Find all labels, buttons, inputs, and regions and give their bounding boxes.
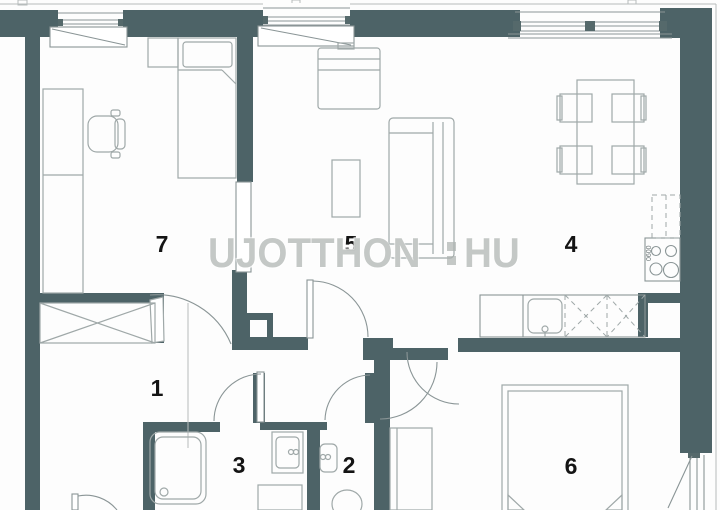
shower (150, 432, 206, 504)
fridge (652, 195, 680, 238)
wall-room3-room2-top (260, 422, 327, 430)
door-room5 (307, 280, 368, 338)
desk-chair (88, 110, 125, 158)
double-bed (502, 385, 628, 510)
blanket-fold (222, 70, 236, 84)
wall-room6-top (458, 338, 712, 352)
duct-shaft-hole (250, 320, 267, 337)
wall-top-c (350, 10, 520, 37)
wardrobe (390, 428, 432, 510)
window-room5 (258, 3, 354, 46)
room3-furniture (150, 432, 303, 510)
wall-hall-top-b (390, 348, 448, 360)
wall-hall-step (363, 338, 393, 360)
wall-top-b (123, 10, 263, 37)
washing-machine (258, 485, 302, 510)
desk (43, 89, 83, 293)
dining-chairs (557, 94, 646, 174)
window-room4 (508, 8, 672, 38)
toilet (332, 490, 362, 510)
room-number-5: 5 (345, 231, 358, 257)
wall-left (25, 37, 40, 510)
room-number-2: 2 (343, 452, 356, 478)
room-number-3: 3 (233, 452, 246, 478)
window-room7 (50, 10, 127, 47)
kitchen-sink (528, 299, 562, 337)
pillow (183, 42, 232, 67)
room2-furniture (320, 444, 362, 510)
dining-table (577, 80, 634, 184)
wall-room7-bottom (40, 293, 163, 303)
door-room7 (150, 295, 231, 344)
single-bed (178, 38, 236, 178)
floor-plan: 0600 (0, 0, 720, 510)
wall-right-stub (684, 445, 712, 453)
sofa (389, 118, 454, 258)
window-room6 (668, 453, 712, 510)
room-number-4: 4 (565, 231, 578, 257)
shower-drain (160, 488, 168, 496)
wall-room3-top (147, 422, 220, 432)
kitchen-counter (480, 295, 645, 337)
armchair (318, 43, 380, 109)
wall-room7-room5 (237, 37, 253, 182)
wall-room3-room2 (307, 430, 320, 510)
side-table (332, 160, 360, 217)
room6-furniture (390, 385, 628, 510)
room5-furniture (318, 43, 454, 258)
room-number-6: 6 (565, 453, 578, 479)
exterior-outline (0, 0, 716, 510)
room-number-1: 1 (151, 375, 164, 401)
room-number-7: 7 (156, 231, 169, 257)
door-entrance (72, 494, 117, 510)
stove: 0600 (645, 238, 680, 281)
dishwasher (565, 295, 607, 337)
floor-plan-drawing: 0600 (0, 0, 720, 510)
partition-room5 (236, 182, 251, 272)
door-room3 (214, 372, 264, 422)
door-room2 (325, 375, 370, 420)
walls (0, 8, 712, 510)
hall-wardrobe (40, 303, 155, 343)
nightstand (148, 38, 178, 67)
hand-basin (320, 444, 337, 472)
stove-width-label: 0600 (646, 245, 653, 261)
kitchen-niche (648, 303, 680, 337)
wall-right (680, 8, 712, 453)
wall-hall-top-a (232, 337, 308, 350)
jamb-room2 (365, 373, 377, 423)
washbasin (272, 432, 303, 473)
wall-top-a (0, 10, 58, 37)
room7-furniture (43, 38, 236, 293)
